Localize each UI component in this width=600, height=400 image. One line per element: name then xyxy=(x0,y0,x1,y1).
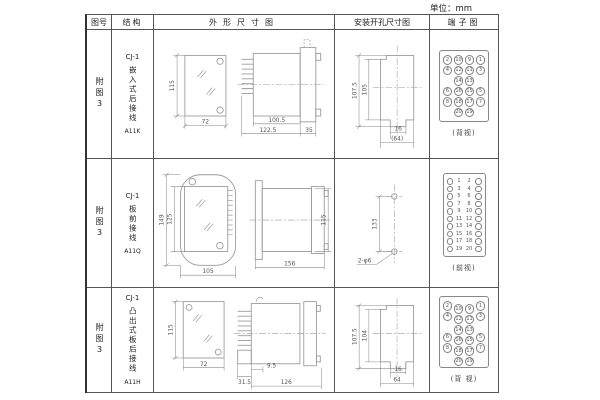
terminal-row: 12 xyxy=(447,178,482,185)
terminal-pin: 20 xyxy=(454,357,464,367)
terminal-pin: 7 xyxy=(476,97,486,107)
dim-label: 115 xyxy=(322,214,328,225)
terminal-pin: 15 xyxy=(465,336,475,346)
terminal-row: 2019 xyxy=(443,354,486,364)
row2-mounting-cell: 133 2-φ6 xyxy=(335,159,430,288)
terminal-pin: 3 xyxy=(476,66,486,76)
terminal-pin-icon xyxy=(447,186,454,193)
terminal-pin: 9 xyxy=(465,304,475,314)
dim-label: 35 xyxy=(305,128,313,134)
terminal-row: 78 xyxy=(447,201,482,208)
terminal-row: 616155 xyxy=(443,333,486,343)
page: 单位：mm 图号 结构 外形尺寸图 安装开孔尺寸图 端子图 附图3 CJ-1 嵌… xyxy=(0,0,600,400)
dim-label: 125 xyxy=(168,213,174,224)
terminal-pin: 19 xyxy=(465,108,475,118)
terminal-pin-icon xyxy=(447,238,454,245)
row3-structure-text: 凸出式板后接线 xyxy=(129,307,137,374)
terminal-row: 1413 xyxy=(443,322,486,332)
row1-mounting-cell: 107.5 105 16 (64) xyxy=(335,30,430,159)
dim-label: 126 xyxy=(281,380,292,386)
row2-fig-cell: 附图3 xyxy=(87,159,112,288)
dim-label: 72 xyxy=(202,119,210,125)
header-structure: 结构 xyxy=(112,15,154,30)
terminal-pin-icon xyxy=(447,216,454,223)
row3-mounting-cell: 107.5 104 16 64 xyxy=(335,288,430,393)
row3-outline-diagram: 115 72 31.5 9.5 126 xyxy=(154,288,334,392)
dim-label: 105 xyxy=(202,269,213,275)
terminal-row: 1516 xyxy=(447,231,482,238)
terminal-pin-icon xyxy=(447,246,454,253)
terminal-number: 12 xyxy=(465,216,473,222)
row3-mounting-diagram: 107.5 104 16 64 xyxy=(335,288,429,392)
header-fig-no: 图号 xyxy=(87,15,112,30)
terminal-pin-icon xyxy=(475,178,482,185)
terminal-row: 1314 xyxy=(447,223,482,230)
terminal-pin: 10 xyxy=(454,304,464,314)
row1-outline-diagram: 115 72 100.5 122.5 35 xyxy=(154,30,334,158)
row1-view-label: (背视) xyxy=(452,128,475,138)
terminal-row: 818177 xyxy=(443,97,486,107)
terminal-pin: 20 xyxy=(454,108,464,118)
terminal-number: 4 xyxy=(465,186,473,192)
terminal-spacer xyxy=(476,108,486,118)
row3-view-label: (背 视) xyxy=(451,374,478,384)
terminal-pin-icon xyxy=(475,201,482,208)
terminal-pin: 16 xyxy=(454,336,464,346)
row3-terminal-panel: 2109141211314136161558181772019 xyxy=(439,296,490,368)
terminal-row: 1718 xyxy=(447,238,482,245)
terminal-pin-icon xyxy=(447,231,454,238)
terminal-pin: 6 xyxy=(443,87,453,97)
terminal-number: 7 xyxy=(455,201,463,207)
terminal-pin-icon xyxy=(447,223,454,230)
terminal-spacer xyxy=(476,322,486,332)
terminal-pin: 8 xyxy=(443,343,453,353)
terminal-pin-icon xyxy=(447,208,454,215)
dim-label: 16 xyxy=(394,127,402,133)
terminal-number: 11 xyxy=(455,216,463,222)
terminal-pin-icon xyxy=(475,193,482,200)
terminal-number: 2 xyxy=(465,178,473,184)
dim-label: 31.5 xyxy=(238,380,251,386)
row3-terminal-cell: 2109141211314136161558181772019 (背 视) xyxy=(430,288,499,393)
dim-label: (64) xyxy=(391,136,403,142)
row1-structure-text: 嵌入式后接线 xyxy=(129,66,137,123)
terminal-number: 6 xyxy=(465,193,473,199)
terminal-spacer xyxy=(443,76,453,86)
terminal-pin: 1 xyxy=(476,55,486,65)
row2-structure-cell: CJ-1 板前接线 A11Q xyxy=(112,159,154,288)
row2-view-label: (前视) xyxy=(452,263,475,273)
terminal-pin: 12 xyxy=(454,66,464,76)
dim-label: 16 xyxy=(394,367,402,373)
terminal-pin-icon xyxy=(447,178,454,185)
terminal-pin: 18 xyxy=(454,346,464,356)
terminal-row: 56 xyxy=(447,193,482,200)
terminal-pin-icon xyxy=(475,216,482,223)
row3-model: CJ-1 xyxy=(126,294,140,302)
terminal-pin: 19 xyxy=(465,357,475,367)
row2-terminal-panel: 1234567891011121314151617181920 xyxy=(443,173,486,257)
dim-label: 72 xyxy=(200,362,208,368)
terminal-number: 10 xyxy=(465,208,473,214)
terminal-pin: 7 xyxy=(476,343,486,353)
row3-fig-cell: 附图3 xyxy=(87,288,112,393)
terminal-spacer xyxy=(476,76,486,86)
terminal-number: 15 xyxy=(455,231,463,237)
terminal-pin: 13 xyxy=(465,76,475,86)
terminal-spacer xyxy=(443,354,453,364)
row2-model: CJ-1 xyxy=(126,192,140,200)
row3-fig-label: 附图3 xyxy=(95,323,103,357)
dim-label: 105 xyxy=(362,84,368,95)
terminal-spacer xyxy=(443,322,453,332)
hole-note-label: 2-φ6 xyxy=(358,258,372,264)
terminal-number: 20 xyxy=(465,246,473,252)
unit-label: 单位：mm xyxy=(430,2,472,14)
header-terminal: 端子图 xyxy=(430,15,499,30)
dim-label: 122.5 xyxy=(260,128,277,134)
terminal-pin-icon xyxy=(475,208,482,215)
terminal-number: 18 xyxy=(465,238,473,244)
terminal-pin: 4 xyxy=(443,312,453,322)
terminal-pin: 14 xyxy=(454,76,464,86)
row1-terminal-panel: 2109141211314136161558181772019 xyxy=(439,50,490,122)
terminal-row: 21091 xyxy=(443,55,486,65)
terminal-pin: 17 xyxy=(465,97,475,107)
terminal-pin: 2 xyxy=(443,301,453,311)
dim-label: 107.5 xyxy=(353,328,359,345)
terminal-number: 16 xyxy=(465,231,473,237)
terminal-pin: 17 xyxy=(465,346,475,356)
terminal-pin: 5 xyxy=(476,87,486,97)
terminal-row: 818177 xyxy=(443,343,486,353)
terminal-pin: 11 xyxy=(465,315,475,325)
row2-outline-cell: 149 125 105 156 115 xyxy=(154,159,335,288)
terminal-pin: 1 xyxy=(476,301,486,311)
terminal-pin: 14 xyxy=(454,325,464,335)
dim-label: 9.5 xyxy=(267,364,277,370)
dim-label: 107.5 xyxy=(353,82,359,99)
terminal-row: 616155 xyxy=(443,87,486,97)
dim-label: 133 xyxy=(373,218,379,229)
terminal-row: 34 xyxy=(447,186,482,193)
terminal-row: 412113 xyxy=(443,66,486,76)
terminal-pin: 12 xyxy=(454,315,464,325)
terminal-spacer xyxy=(443,108,453,118)
header-outline: 外形尺寸图 xyxy=(154,15,335,30)
terminal-pin: 16 xyxy=(454,87,464,97)
terminal-pin-icon xyxy=(475,223,482,230)
row2-outline-diagram: 149 125 105 156 115 xyxy=(154,159,334,287)
terminal-pin: 3 xyxy=(476,312,486,322)
terminal-pin: 4 xyxy=(443,66,453,76)
row2-code: A11Q xyxy=(124,248,140,255)
dim-label: 104 xyxy=(362,330,368,341)
terminal-row: 910 xyxy=(447,208,482,215)
row3-structure-cell: CJ-1 凸出式板后接线 A11H xyxy=(112,288,154,393)
row1-code: A11K xyxy=(125,128,141,135)
terminal-pin: 10 xyxy=(454,55,464,65)
row2-terminal-cell: 1234567891011121314151617181920 (前视) xyxy=(430,159,499,288)
spec-table: 图号 结构 外形尺寸图 安装开孔尺寸图 端子图 附图3 CJ-1 嵌入式后接线 … xyxy=(85,14,499,393)
terminal-pin: 15 xyxy=(465,87,475,97)
dim-label: 115 xyxy=(169,324,175,335)
row2-mounting-diagram: 133 2-φ6 xyxy=(335,159,429,287)
terminal-pin: 11 xyxy=(465,66,475,76)
terminal-row: 412113 xyxy=(443,312,486,322)
dim-label: 100.5 xyxy=(268,118,285,124)
terminal-pin-icon xyxy=(447,201,454,208)
terminal-number: 13 xyxy=(455,223,463,229)
row1-fig-label: 附图3 xyxy=(95,77,103,111)
terminal-number: 5 xyxy=(455,193,463,199)
terminal-row: 1920 xyxy=(447,246,482,253)
terminal-pin: 18 xyxy=(454,97,464,107)
terminal-pin-icon xyxy=(475,246,482,253)
terminal-row: 1413 xyxy=(443,76,486,86)
row1-outline-cell: 115 72 100.5 122.5 35 xyxy=(154,30,335,159)
terminal-row: 21091 xyxy=(443,301,486,311)
terminal-pin: 9 xyxy=(465,55,475,65)
terminal-pin-icon xyxy=(475,238,482,245)
row3-code: A11H xyxy=(124,379,140,386)
terminal-row: 1112 xyxy=(447,216,482,223)
row1-model: CJ-1 xyxy=(126,53,140,61)
row2-fig-label: 附图3 xyxy=(95,206,103,240)
header-mounting: 安装开孔尺寸图 xyxy=(335,15,430,30)
terminal-pin-icon xyxy=(475,186,482,193)
terminal-number: 9 xyxy=(455,208,463,214)
terminal-number: 8 xyxy=(465,201,473,207)
row1-mounting-diagram: 107.5 105 16 (64) xyxy=(335,30,429,158)
terminal-spacer xyxy=(476,354,486,364)
terminal-number: 3 xyxy=(455,186,463,192)
row1-terminal-cell: 2109141211314136161558181772019 (背视) xyxy=(430,30,499,159)
row1-fig-cell: 附图3 xyxy=(87,30,112,159)
terminal-number: 19 xyxy=(455,246,463,252)
terminal-pin: 6 xyxy=(443,333,453,343)
terminal-pin: 13 xyxy=(465,325,475,335)
terminal-pin: 2 xyxy=(443,55,453,65)
dim-label: 149 xyxy=(160,214,166,225)
dim-label: 115 xyxy=(170,80,176,91)
terminal-pin: 8 xyxy=(443,97,453,107)
dim-label: 64 xyxy=(393,377,401,383)
terminal-number: 14 xyxy=(465,223,473,229)
terminal-row: 2019 xyxy=(443,108,486,118)
terminal-pin-icon xyxy=(447,193,454,200)
terminal-number: 1 xyxy=(455,178,463,184)
row2-structure-text: 板前接线 xyxy=(129,205,137,243)
terminal-pin: 5 xyxy=(476,333,486,343)
row3-outline-cell: 115 72 31.5 9.5 126 xyxy=(154,288,335,393)
dim-label: 156 xyxy=(284,261,295,267)
terminal-number: 17 xyxy=(455,238,463,244)
row1-structure-cell: CJ-1 嵌入式后接线 A11K xyxy=(112,30,154,159)
terminal-pin-icon xyxy=(475,231,482,238)
